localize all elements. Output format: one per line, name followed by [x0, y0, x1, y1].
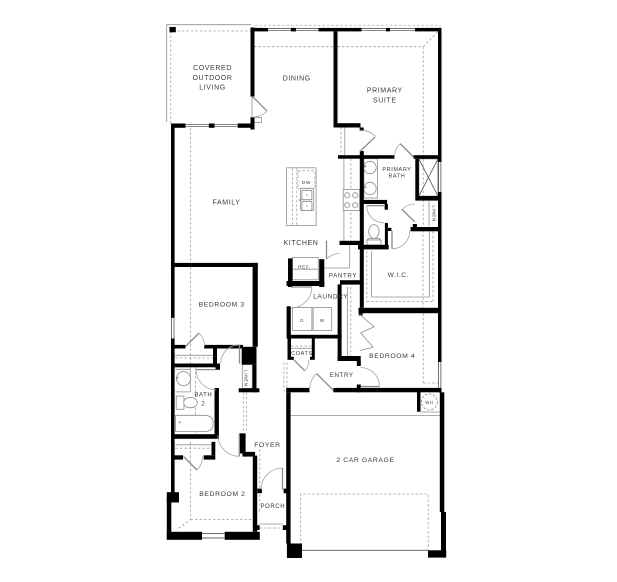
svg-text:PANTRY: PANTRY: [329, 273, 357, 280]
svg-text:W.I.C.: W.I.C.: [388, 272, 409, 279]
svg-text:BEDROOM 2: BEDROOM 2: [199, 491, 245, 498]
svg-text:FOYER: FOYER: [254, 442, 280, 449]
svg-text:DW: DW: [302, 180, 311, 186]
svg-text:PORCH: PORCH: [260, 504, 285, 510]
svg-text:PRIMARY: PRIMARY: [382, 167, 411, 173]
svg-text:BEDROOM 4: BEDROOM 4: [369, 353, 415, 360]
svg-text:DINING: DINING: [283, 75, 311, 82]
svg-text:BEDROOM 3: BEDROOM 3: [199, 301, 245, 308]
svg-text:COVERED: COVERED: [193, 65, 232, 72]
svg-text:ENTRY: ENTRY: [330, 372, 354, 379]
svg-text:BATH: BATH: [194, 393, 212, 399]
svg-text:SUITE: SUITE: [373, 97, 397, 104]
svg-text:2 CAR GARAGE: 2 CAR GARAGE: [336, 457, 394, 464]
svg-text:KITCHEN: KITCHEN: [284, 240, 319, 247]
svg-text:COATS: COATS: [291, 351, 313, 357]
svg-text:D: D: [300, 318, 304, 323]
svg-text:LINEN: LINEN: [432, 205, 437, 222]
svg-text:OUTDOOR: OUTDOOR: [193, 75, 233, 82]
svg-text:REF.: REF.: [298, 265, 311, 271]
svg-text:LIVING: LIVING: [199, 85, 226, 92]
svg-text:W: W: [320, 318, 325, 323]
svg-text:WH: WH: [425, 400, 433, 405]
svg-text:2: 2: [201, 401, 205, 407]
svg-text:BATH: BATH: [389, 173, 406, 179]
svg-text:PRIMARY: PRIMARY: [367, 88, 403, 95]
svg-text:LINEN: LINEN: [243, 370, 248, 387]
svg-text:FAMILY: FAMILY: [213, 200, 241, 207]
svg-text:LAUNDRY: LAUNDRY: [313, 293, 348, 300]
